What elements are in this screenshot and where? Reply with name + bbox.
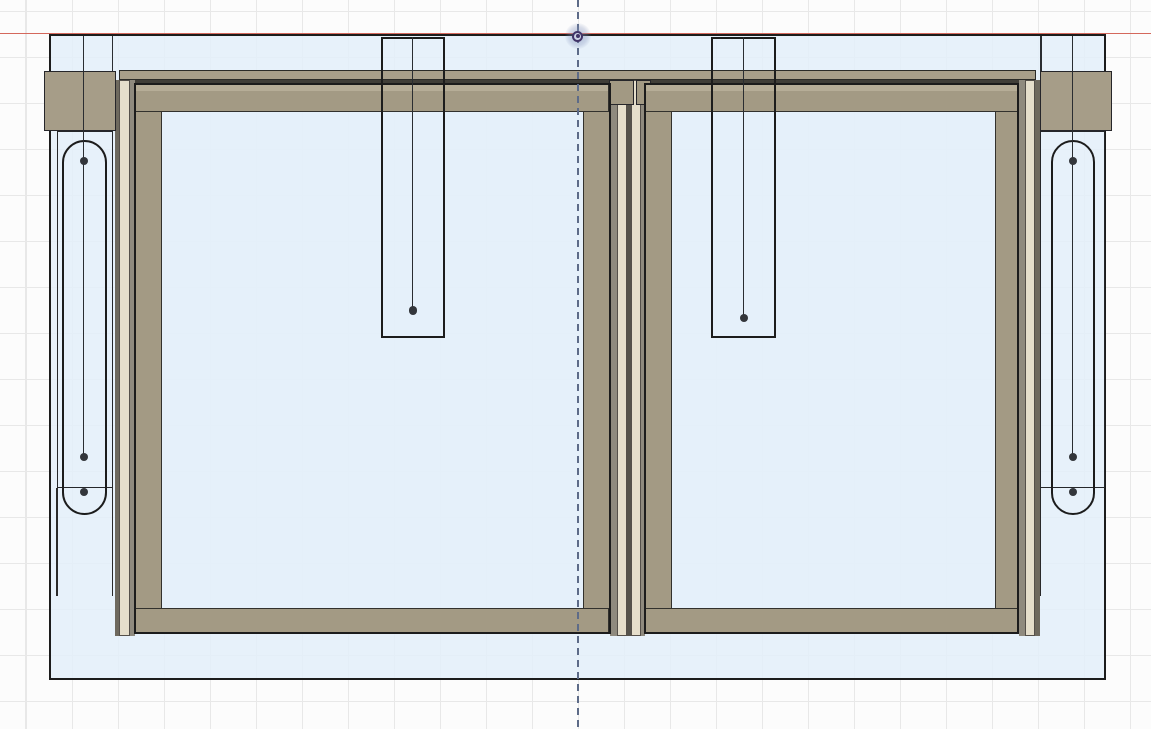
right-hanger-rod [743,37,745,319]
center-mullion-block-left [609,80,634,105]
right-track-cream [1025,80,1036,637]
right-track-dark [1035,80,1040,636]
right-slot-centerline [1072,36,1074,457]
left-hanger-point [409,306,417,314]
right-door-outline [644,83,1019,634]
left-track-cream [119,80,130,637]
left-jamb-edge [112,36,114,72]
right-jamb-edge [1040,36,1042,72]
cad-canvas[interactable] [0,0,1151,729]
right-slot-point-top [1069,157,1077,165]
left-corner-block [44,71,116,132]
right-slot-point-bottom [1069,488,1077,496]
left-bracket-edge-a [56,488,57,596]
left-slot-centerline [83,36,85,457]
left-slot-point-bottom [80,488,88,496]
center-track-cream-b [631,80,641,637]
left-slot-point-top [80,157,88,165]
left-door-outline [134,83,611,634]
left-slot-point-mid [80,453,88,461]
right-corner-block [1040,71,1112,132]
vertical-centerline[interactable] [577,0,579,729]
right-slot-point-mid [1069,453,1077,461]
center-track-cream-a [617,80,628,637]
left-hanger-rod [412,37,414,311]
left-bracket-edge-b [112,488,113,596]
